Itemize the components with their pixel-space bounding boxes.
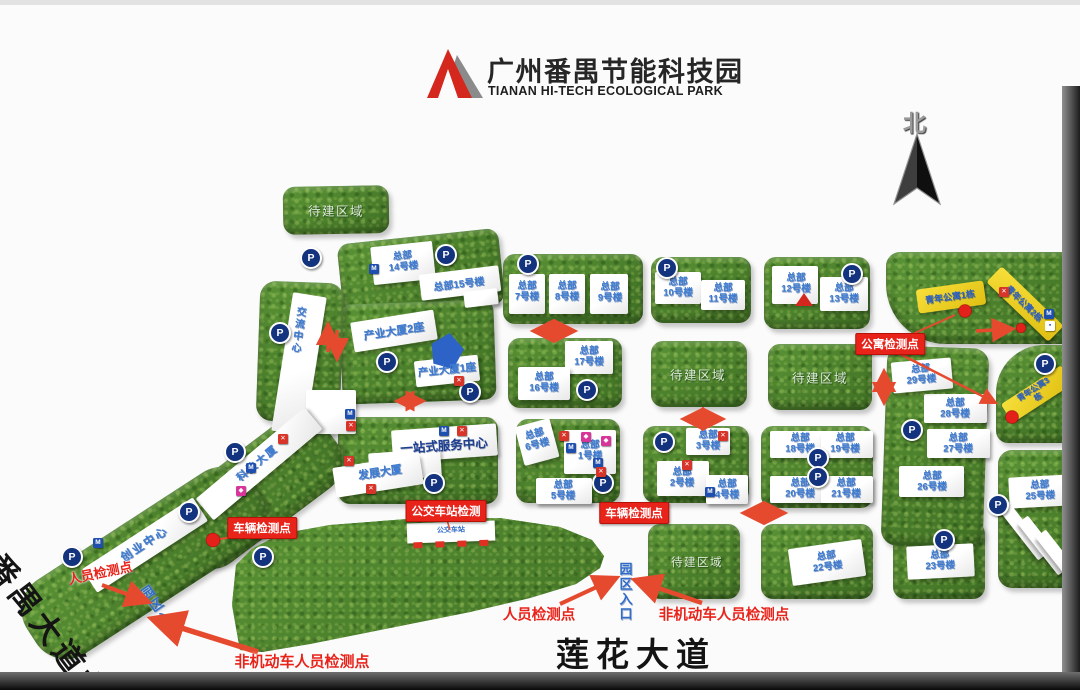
amenity-icon: ✕ — [596, 467, 606, 477]
checkpoint-text-person: 人员检测点 — [503, 604, 576, 625]
building-hq15-annex — [463, 288, 499, 308]
right-edge-shadow — [1062, 86, 1080, 674]
parking-icon: P — [269, 322, 291, 344]
parking-icon: P — [61, 546, 83, 568]
building-label-hq2: 总部 2号楼 — [670, 467, 694, 488]
amenity-icon: ✕ — [682, 460, 692, 470]
parking-icon: P — [224, 441, 246, 463]
amenity-icon: M — [566, 443, 576, 453]
parking-icon: P — [987, 494, 1009, 516]
building-label-hq8: 总部 8号楼 — [555, 281, 579, 302]
road-label-lianhua-avenue: 莲花大道 — [556, 628, 716, 676]
building-label-hq12: 总部 12号楼 — [781, 273, 811, 294]
parking-icon: P — [933, 529, 955, 551]
entrance-label-south: 园区入口 — [616, 562, 635, 622]
parking-icon: P — [653, 431, 675, 453]
bottom-edge-shadow — [0, 672, 1080, 690]
parking-icon: P — [517, 253, 539, 275]
checkpoint-chip-bus: 公交车站检测 — [406, 500, 487, 522]
amenity-icon: M — [369, 264, 379, 274]
parking-icon: P — [576, 379, 598, 401]
amenity-icon: ◆ — [581, 432, 591, 442]
amenity-icon: ✕ — [999, 287, 1009, 297]
building-label-hq16: 总部 16号楼 — [529, 372, 559, 393]
amenity-icon: ✕ — [366, 484, 376, 494]
bus-platform-tick — [435, 541, 444, 547]
building-label-hq19: 总部 19号楼 — [830, 433, 860, 454]
building-label-hq23: 总部 23号楼 — [925, 550, 956, 573]
checkpoint-text-nonmotor: 非机动车人员检测点 — [659, 604, 790, 625]
parking-icon: P — [901, 419, 923, 441]
bus-platform-tick — [479, 540, 488, 546]
amenity-icon: ✕ — [559, 431, 569, 441]
parking-icon: P — [423, 472, 445, 494]
building-label-hq27: 总部 27号楼 — [943, 433, 973, 454]
amenity-icon: ✕ — [346, 421, 356, 431]
parking-icon: P — [807, 466, 829, 488]
building-label-hq14: 总部 14号楼 — [387, 250, 419, 274]
bus-platform-tick — [457, 540, 466, 546]
amenity-icon: M — [705, 487, 715, 497]
parking-icon: P — [841, 263, 863, 285]
amenity-icon: ✕ — [457, 426, 467, 436]
parking-icon: P — [656, 257, 678, 279]
area-label-pending: 待建区域 — [670, 365, 726, 384]
parking-icon: P — [376, 351, 398, 373]
building-label-hq25: 总部 25号楼 — [1025, 480, 1056, 503]
amenity-icon: ▪ — [1045, 321, 1055, 331]
checkpoint-text-nonmotor: 非机动车人员检测点 — [234, 651, 369, 672]
parking-icon: P — [178, 501, 200, 523]
building-label-hq9: 总部 9号楼 — [598, 282, 622, 303]
building-label-hq4: 总部 4号楼 — [715, 479, 739, 500]
bus-platform-tick — [413, 542, 422, 548]
building-label-hq7: 总部 7号楼 — [515, 281, 539, 302]
top-edge — [0, 0, 1080, 5]
amenity-icon: M — [439, 426, 449, 436]
parking-icon: P — [300, 247, 322, 269]
amenity-icon: M — [345, 409, 355, 419]
amenity-icon: ✕ — [718, 431, 728, 441]
building-label-hq5: 总部 5号楼 — [551, 480, 575, 501]
amenity-icon: ◆ — [601, 436, 611, 446]
building-label-hq3: 总部 3号楼 — [696, 430, 720, 451]
building-label-hq10: 总部 10号楼 — [663, 277, 693, 298]
area-label-pending: 待建区域 — [671, 554, 723, 570]
building-label-hq29: 总部 29号楼 — [905, 363, 936, 387]
area-label-pending: 待建区域 — [792, 368, 848, 387]
building-label-hq11: 总部 11号楼 — [708, 283, 737, 304]
building-label-hq21: 总部 21号楼 — [831, 478, 861, 499]
amenity-icon: ✕ — [278, 434, 288, 444]
building-label-hq28: 总部 28号楼 — [940, 398, 970, 419]
amenity-icon: M — [246, 463, 256, 473]
park-map: 广州番禺节能科技园 TIANAN HI-TECH ECOLOGICAL PARK… — [0, 0, 1080, 690]
north-arrow-icon — [892, 132, 942, 208]
amenity-icon: ✕ — [344, 456, 354, 466]
building-label-hq26: 总部 26号楼 — [917, 471, 947, 492]
park-logo-icon — [427, 45, 485, 101]
checkpoint-chip-apartment: 公寓检测点 — [855, 333, 925, 355]
park-subtitle: TIANAN HI-TECH ECOLOGICAL PARK — [488, 84, 723, 98]
building-label-hq22: 总部 22号楼 — [811, 549, 843, 574]
building-label-hq17: 总部 17号楼 — [574, 346, 604, 367]
bus-platform: 公交车站 — [407, 520, 496, 543]
triangle-marker-icon — [795, 293, 813, 306]
building-label-hq13: 总部 13号楼 — [829, 283, 859, 304]
parking-icon: P — [1034, 353, 1056, 375]
amenity-icon: M — [1044, 309, 1054, 319]
checkpoint-chip-vehicle: 车辆检测点 — [227, 517, 297, 539]
bus-platform-label: 公交车站 — [437, 525, 465, 536]
checkpoint-chip-vehicle: 车辆检测点 — [599, 502, 669, 524]
area-label-pending: 待建区域 — [308, 201, 364, 220]
parking-icon: P — [252, 546, 274, 568]
amenity-icon: ✕ — [454, 376, 464, 386]
amenity-icon: ◆ — [236, 486, 246, 496]
parking-icon: P — [435, 244, 457, 266]
amenity-icon: M — [93, 538, 103, 548]
